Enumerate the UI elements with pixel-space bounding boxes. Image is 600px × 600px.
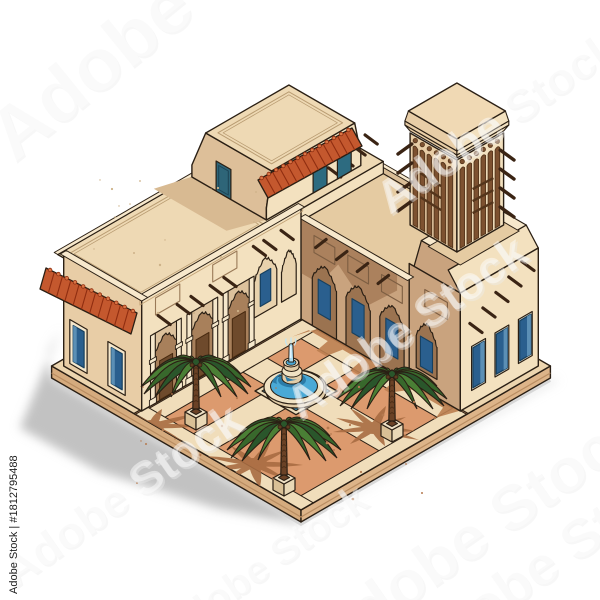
svg-text:Adobe Stock | #1812795488: Adobe Stock | #1812795488 [8, 455, 20, 594]
